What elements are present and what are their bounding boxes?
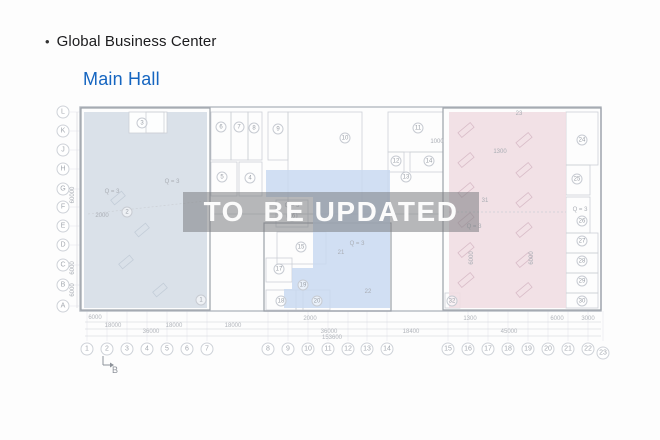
watermark-text: TO BE UPDATED [204,196,459,228]
watermark-banner: TO BE UPDATED [183,192,479,232]
